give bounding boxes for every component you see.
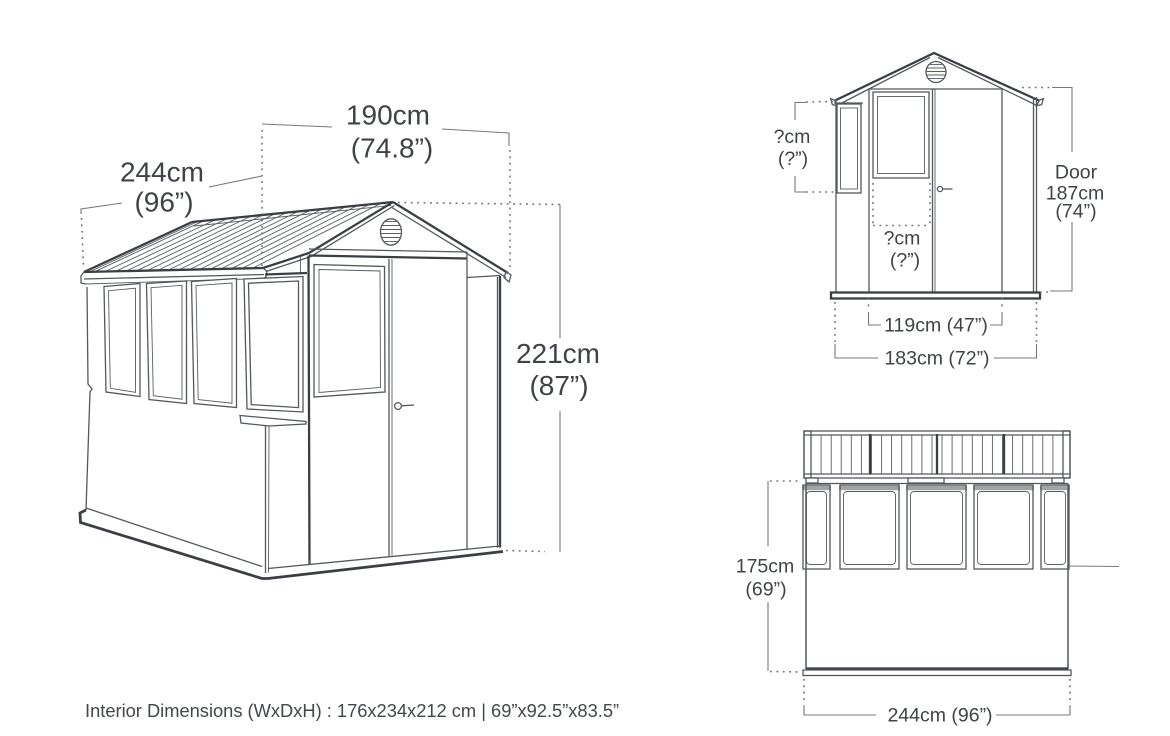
svg-text:(87”): (87”) bbox=[529, 370, 588, 401]
svg-text:175cm: 175cm bbox=[736, 556, 795, 578]
svg-text:190cm: 190cm bbox=[346, 100, 430, 131]
svg-text:(?”): (?”) bbox=[890, 250, 920, 272]
svg-text:119cm (47”): 119cm (47”) bbox=[884, 315, 988, 337]
svg-text:Door: Door bbox=[1055, 162, 1098, 184]
svg-text:244cm: 244cm bbox=[120, 157, 204, 188]
svg-text:Interior Dimensions (WxDxH) :: Interior Dimensions (WxDxH) : 176x234x21… bbox=[85, 700, 619, 721]
svg-text:221cm: 221cm bbox=[516, 338, 600, 369]
svg-text:(96”): (96”) bbox=[134, 187, 193, 218]
svg-text:?cm: ?cm bbox=[774, 126, 811, 148]
svg-text:(?”): (?”) bbox=[778, 148, 808, 170]
svg-text:(74”): (74”) bbox=[1055, 201, 1096, 223]
svg-text:244cm (96”): 244cm (96”) bbox=[887, 705, 992, 727]
svg-text:(74.8”): (74.8”) bbox=[351, 133, 433, 164]
svg-text:?cm: ?cm bbox=[884, 228, 921, 250]
svg-text:183cm (72”): 183cm (72”) bbox=[884, 348, 989, 370]
svg-text:(69”): (69”) bbox=[745, 579, 786, 601]
